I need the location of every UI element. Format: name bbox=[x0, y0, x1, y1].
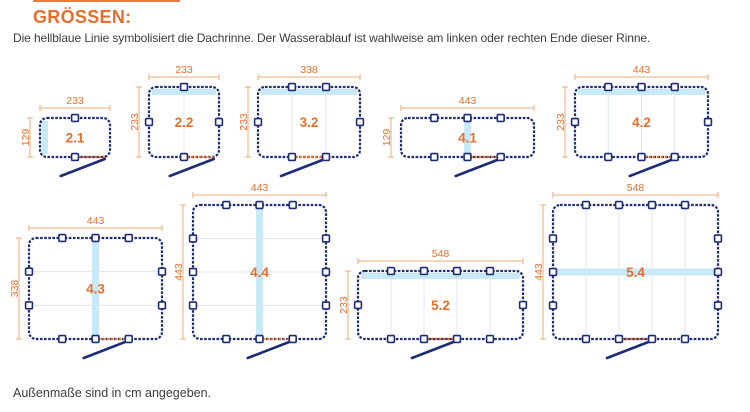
connector-square bbox=[682, 202, 689, 209]
connector-square bbox=[487, 336, 494, 343]
connector-square bbox=[649, 202, 656, 209]
connector-square bbox=[357, 119, 364, 126]
connector-square bbox=[181, 154, 188, 161]
dim-label-side: 443 bbox=[533, 263, 545, 281]
gutter-line bbox=[42, 121, 48, 154]
connector-square bbox=[550, 302, 557, 309]
model-label: 2.1 bbox=[66, 130, 85, 145]
dim-label-top: 443 bbox=[251, 182, 269, 194]
connector-square bbox=[323, 154, 330, 161]
connector-square bbox=[671, 154, 678, 161]
water-drain-line bbox=[456, 159, 500, 176]
connector-square bbox=[550, 235, 557, 242]
size-diagram-2.1: 2331292.1 bbox=[10, 90, 124, 187]
water-drain-line bbox=[170, 159, 214, 176]
dim-label-top: 338 bbox=[300, 64, 318, 76]
dim-label-side: 233 bbox=[338, 296, 350, 314]
dim-label-side: 233 bbox=[555, 113, 567, 131]
connector-square bbox=[464, 154, 471, 161]
dim-label-side: 129 bbox=[20, 129, 32, 147]
model-label: 4.1 bbox=[458, 130, 477, 145]
connector-square bbox=[583, 336, 590, 343]
connector-square bbox=[638, 84, 645, 91]
connector-square bbox=[72, 154, 79, 161]
dim-label-top: 233 bbox=[66, 95, 84, 107]
connector-square bbox=[146, 119, 153, 126]
connector-square bbox=[431, 115, 438, 122]
dim-label-side: 129 bbox=[381, 129, 393, 147]
connector-square bbox=[388, 268, 395, 275]
connector-square bbox=[289, 336, 296, 343]
connector-square bbox=[223, 202, 230, 209]
connector-square bbox=[59, 235, 66, 242]
connector-square bbox=[572, 119, 579, 126]
connector-square bbox=[715, 302, 722, 309]
connector-square bbox=[26, 302, 33, 309]
water-drain-line bbox=[630, 159, 674, 176]
connector-square bbox=[289, 154, 296, 161]
connector-square bbox=[715, 235, 722, 242]
dim-label-top: 233 bbox=[175, 64, 193, 76]
connector-square bbox=[583, 202, 590, 209]
connector-square bbox=[671, 84, 678, 91]
connector-square bbox=[421, 336, 428, 343]
water-drain-line bbox=[281, 159, 325, 176]
connector-square bbox=[682, 336, 689, 343]
water-drain-line bbox=[84, 341, 128, 358]
connector-square bbox=[256, 202, 263, 209]
size-diagram-4.4: 4434434.4 bbox=[163, 177, 340, 369]
dim-label-side: 338 bbox=[9, 280, 21, 298]
connector-square bbox=[289, 202, 296, 209]
connector-square bbox=[289, 84, 296, 91]
connector-square bbox=[431, 154, 438, 161]
connector-square bbox=[616, 202, 623, 209]
connector-square bbox=[464, 115, 471, 122]
model-label: 3.2 bbox=[300, 115, 319, 130]
dim-label-top: 443 bbox=[87, 215, 105, 227]
connector-square bbox=[605, 84, 612, 91]
connector-square bbox=[421, 268, 428, 275]
water-drain-line bbox=[248, 341, 292, 358]
water-drain-line bbox=[61, 159, 105, 176]
water-drain-line bbox=[607, 341, 651, 358]
model-label: 5.2 bbox=[431, 298, 450, 313]
model-label: 4.4 bbox=[250, 265, 269, 280]
connector-square bbox=[497, 154, 504, 161]
size-diagram-2.2: 2332332.2 bbox=[119, 59, 233, 187]
connector-square bbox=[125, 336, 132, 343]
size-diagram-4.1: 4431294.1 bbox=[371, 90, 548, 187]
size-diagram-4.2: 4432334.2 bbox=[545, 59, 722, 187]
connector-square bbox=[181, 84, 188, 91]
connector-square bbox=[255, 119, 262, 126]
connector-square bbox=[256, 336, 263, 343]
connector-square bbox=[190, 302, 197, 309]
connector-square bbox=[550, 269, 557, 276]
connector-square bbox=[454, 336, 461, 343]
gutter-line bbox=[361, 273, 520, 279]
connector-square bbox=[190, 235, 197, 242]
connector-square bbox=[59, 336, 66, 343]
connector-square bbox=[323, 84, 330, 91]
connector-square bbox=[72, 115, 79, 122]
connector-square bbox=[216, 119, 223, 126]
connector-square bbox=[649, 336, 656, 343]
dim-label-side: 443 bbox=[173, 263, 185, 281]
connector-square bbox=[487, 268, 494, 275]
page: GRÖSSEN: Die hellblaue Linie symbolisier… bbox=[0, 0, 750, 412]
connector-square bbox=[638, 154, 645, 161]
connector-square bbox=[454, 268, 461, 275]
size-diagram-3.2: 3382333.2 bbox=[228, 59, 374, 187]
dim-label-top: 443 bbox=[633, 64, 651, 76]
model-label: 2.2 bbox=[175, 115, 194, 130]
model-label: 4.2 bbox=[632, 115, 651, 130]
dim-label-top: 443 bbox=[459, 95, 477, 107]
connector-square bbox=[125, 235, 132, 242]
connector-square bbox=[355, 302, 362, 309]
connector-square bbox=[92, 336, 99, 343]
connector-square bbox=[190, 269, 197, 276]
size-diagram-5.4: 5484435.4 bbox=[523, 177, 732, 369]
dim-label-top: 548 bbox=[432, 248, 450, 260]
connector-square bbox=[497, 115, 504, 122]
connector-square bbox=[616, 336, 623, 343]
connector-square bbox=[388, 336, 395, 343]
dim-label-side: 233 bbox=[238, 113, 250, 131]
model-label: 5.4 bbox=[626, 265, 645, 280]
connector-square bbox=[26, 268, 33, 275]
gutter-line bbox=[261, 89, 357, 95]
size-diagrams: 2331292.12332332.23382333.24431294.14432… bbox=[0, 0, 750, 412]
size-diagram-4.3: 4433384.3 bbox=[0, 210, 176, 369]
page-footer: Außenmaße sind in cm angegeben. bbox=[13, 386, 211, 400]
connector-square bbox=[705, 119, 712, 126]
water-drain-line bbox=[412, 341, 456, 358]
model-label: 4.3 bbox=[86, 281, 105, 296]
connector-square bbox=[323, 235, 330, 242]
connector-square bbox=[605, 154, 612, 161]
connector-square bbox=[223, 336, 230, 343]
dim-label-side: 233 bbox=[129, 113, 141, 131]
connector-square bbox=[92, 235, 99, 242]
size-diagram-5.2: 5482335.2 bbox=[328, 243, 537, 369]
dim-label-top: 548 bbox=[627, 182, 645, 194]
connector-square bbox=[715, 269, 722, 276]
